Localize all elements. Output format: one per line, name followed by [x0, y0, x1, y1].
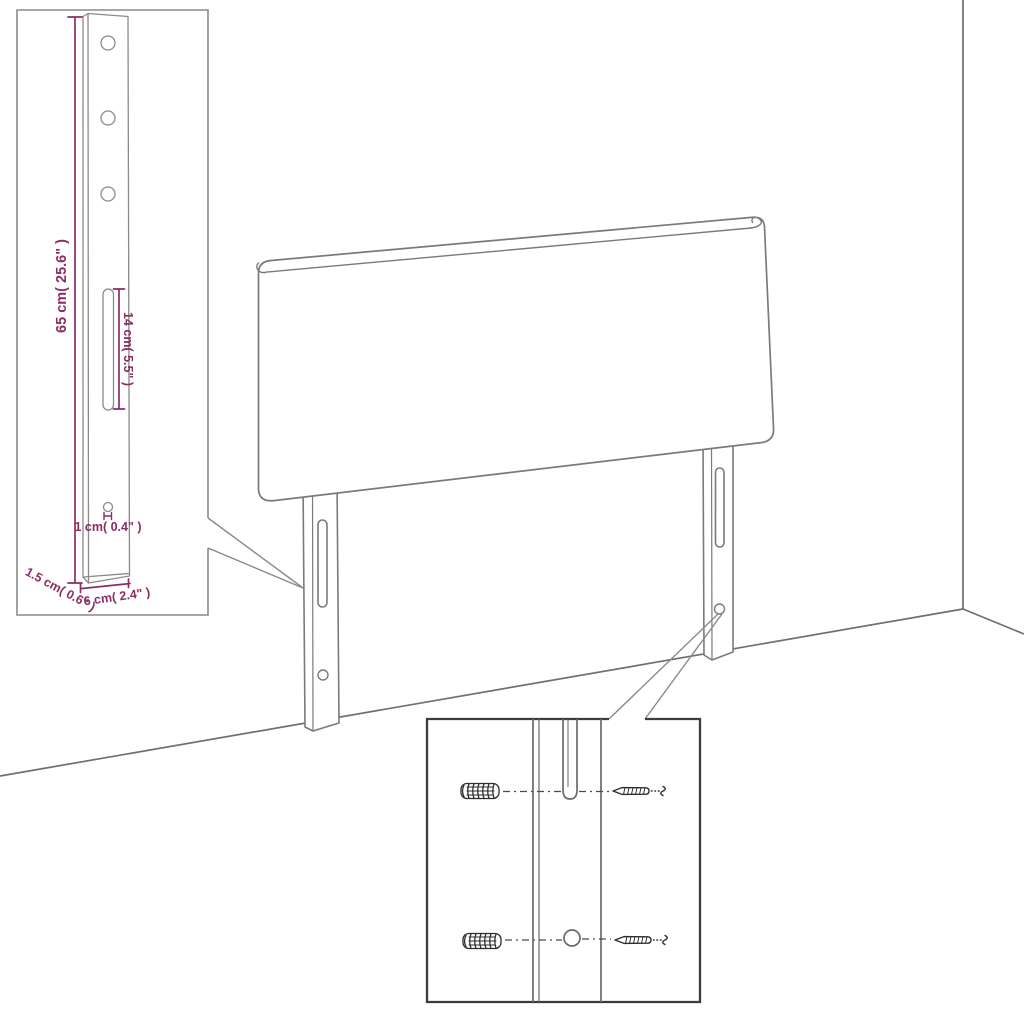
leg-detail-small-hole	[104, 503, 113, 512]
label-hole-diameter: 1 cm( 0.4" )	[74, 520, 141, 534]
screw-detail-inset	[427, 719, 700, 1002]
headboard-panel	[257, 217, 774, 501]
leg-detail-slot	[103, 289, 114, 410]
leg-detail-callout-lines	[208, 518, 303, 588]
headboard-leg-right	[703, 436, 733, 660]
floor-line-right	[963, 609, 1024, 634]
assembly-diagram: 65 cm( 25.6" ) 14 cm( 5.5" ) 1 cm( 0.4" …	[0, 0, 1024, 1024]
leg-right-slot	[716, 468, 725, 547]
leg-detail-hole-1	[101, 36, 115, 50]
label-leg-height: 65 cm( 25.6" )	[54, 239, 70, 333]
wall-plug-bottom-icon	[463, 934, 501, 949]
leg-detail-hole-3	[101, 187, 115, 201]
wall-plug-top-icon	[461, 784, 499, 799]
leg-right-hole	[715, 604, 725, 614]
leg-detail-drawing	[83, 14, 130, 584]
leg-left-slot	[318, 520, 327, 607]
leg-detail-inset: 65 cm( 25.6" ) 14 cm( 5.5" ) 1 cm( 0.4" …	[17, 10, 208, 615]
leg-left-hole	[318, 670, 328, 680]
headboard-leg-left	[303, 478, 339, 731]
leg-detail-hole-2	[101, 111, 115, 125]
label-slot-length: 14 cm( 5.5" )	[121, 312, 135, 386]
screw-detail-hole	[564, 930, 580, 946]
